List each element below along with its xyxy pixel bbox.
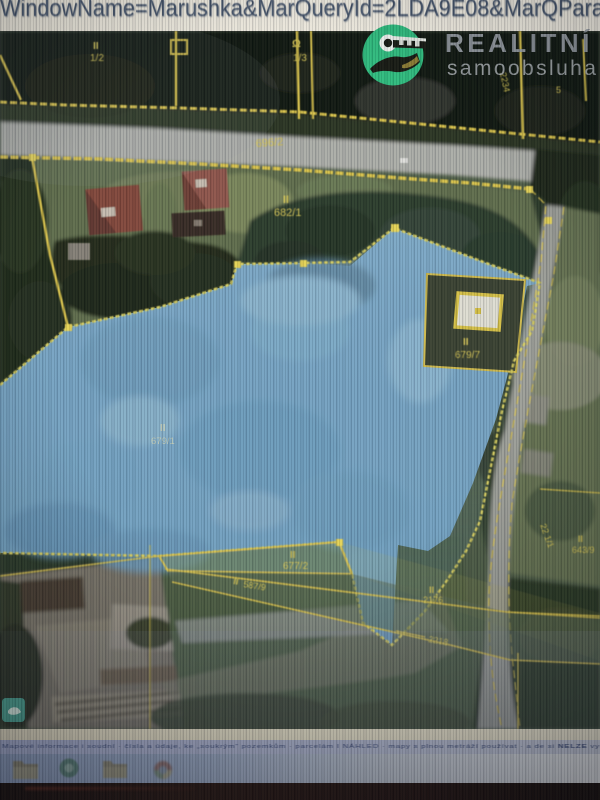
svg-text:II: II	[283, 194, 289, 206]
svg-text:II: II	[578, 534, 583, 544]
svg-text:643/9: 643/9	[572, 545, 595, 555]
svg-text:II: II	[290, 550, 296, 561]
svg-text:1/3: 1/3	[293, 53, 307, 64]
svg-text:679/1: 679/1	[151, 436, 175, 447]
svg-text:677/2: 677/2	[283, 561, 308, 572]
svg-text:II: II	[463, 337, 469, 348]
svg-text:Ω: Ω	[292, 38, 301, 50]
svg-text:2176: 2176	[423, 595, 443, 605]
svg-text:682/1: 682/1	[274, 207, 302, 219]
svg-text:II: II	[160, 423, 166, 434]
svg-text:679/7: 679/7	[455, 350, 480, 361]
svg-text:II: II	[429, 585, 434, 595]
